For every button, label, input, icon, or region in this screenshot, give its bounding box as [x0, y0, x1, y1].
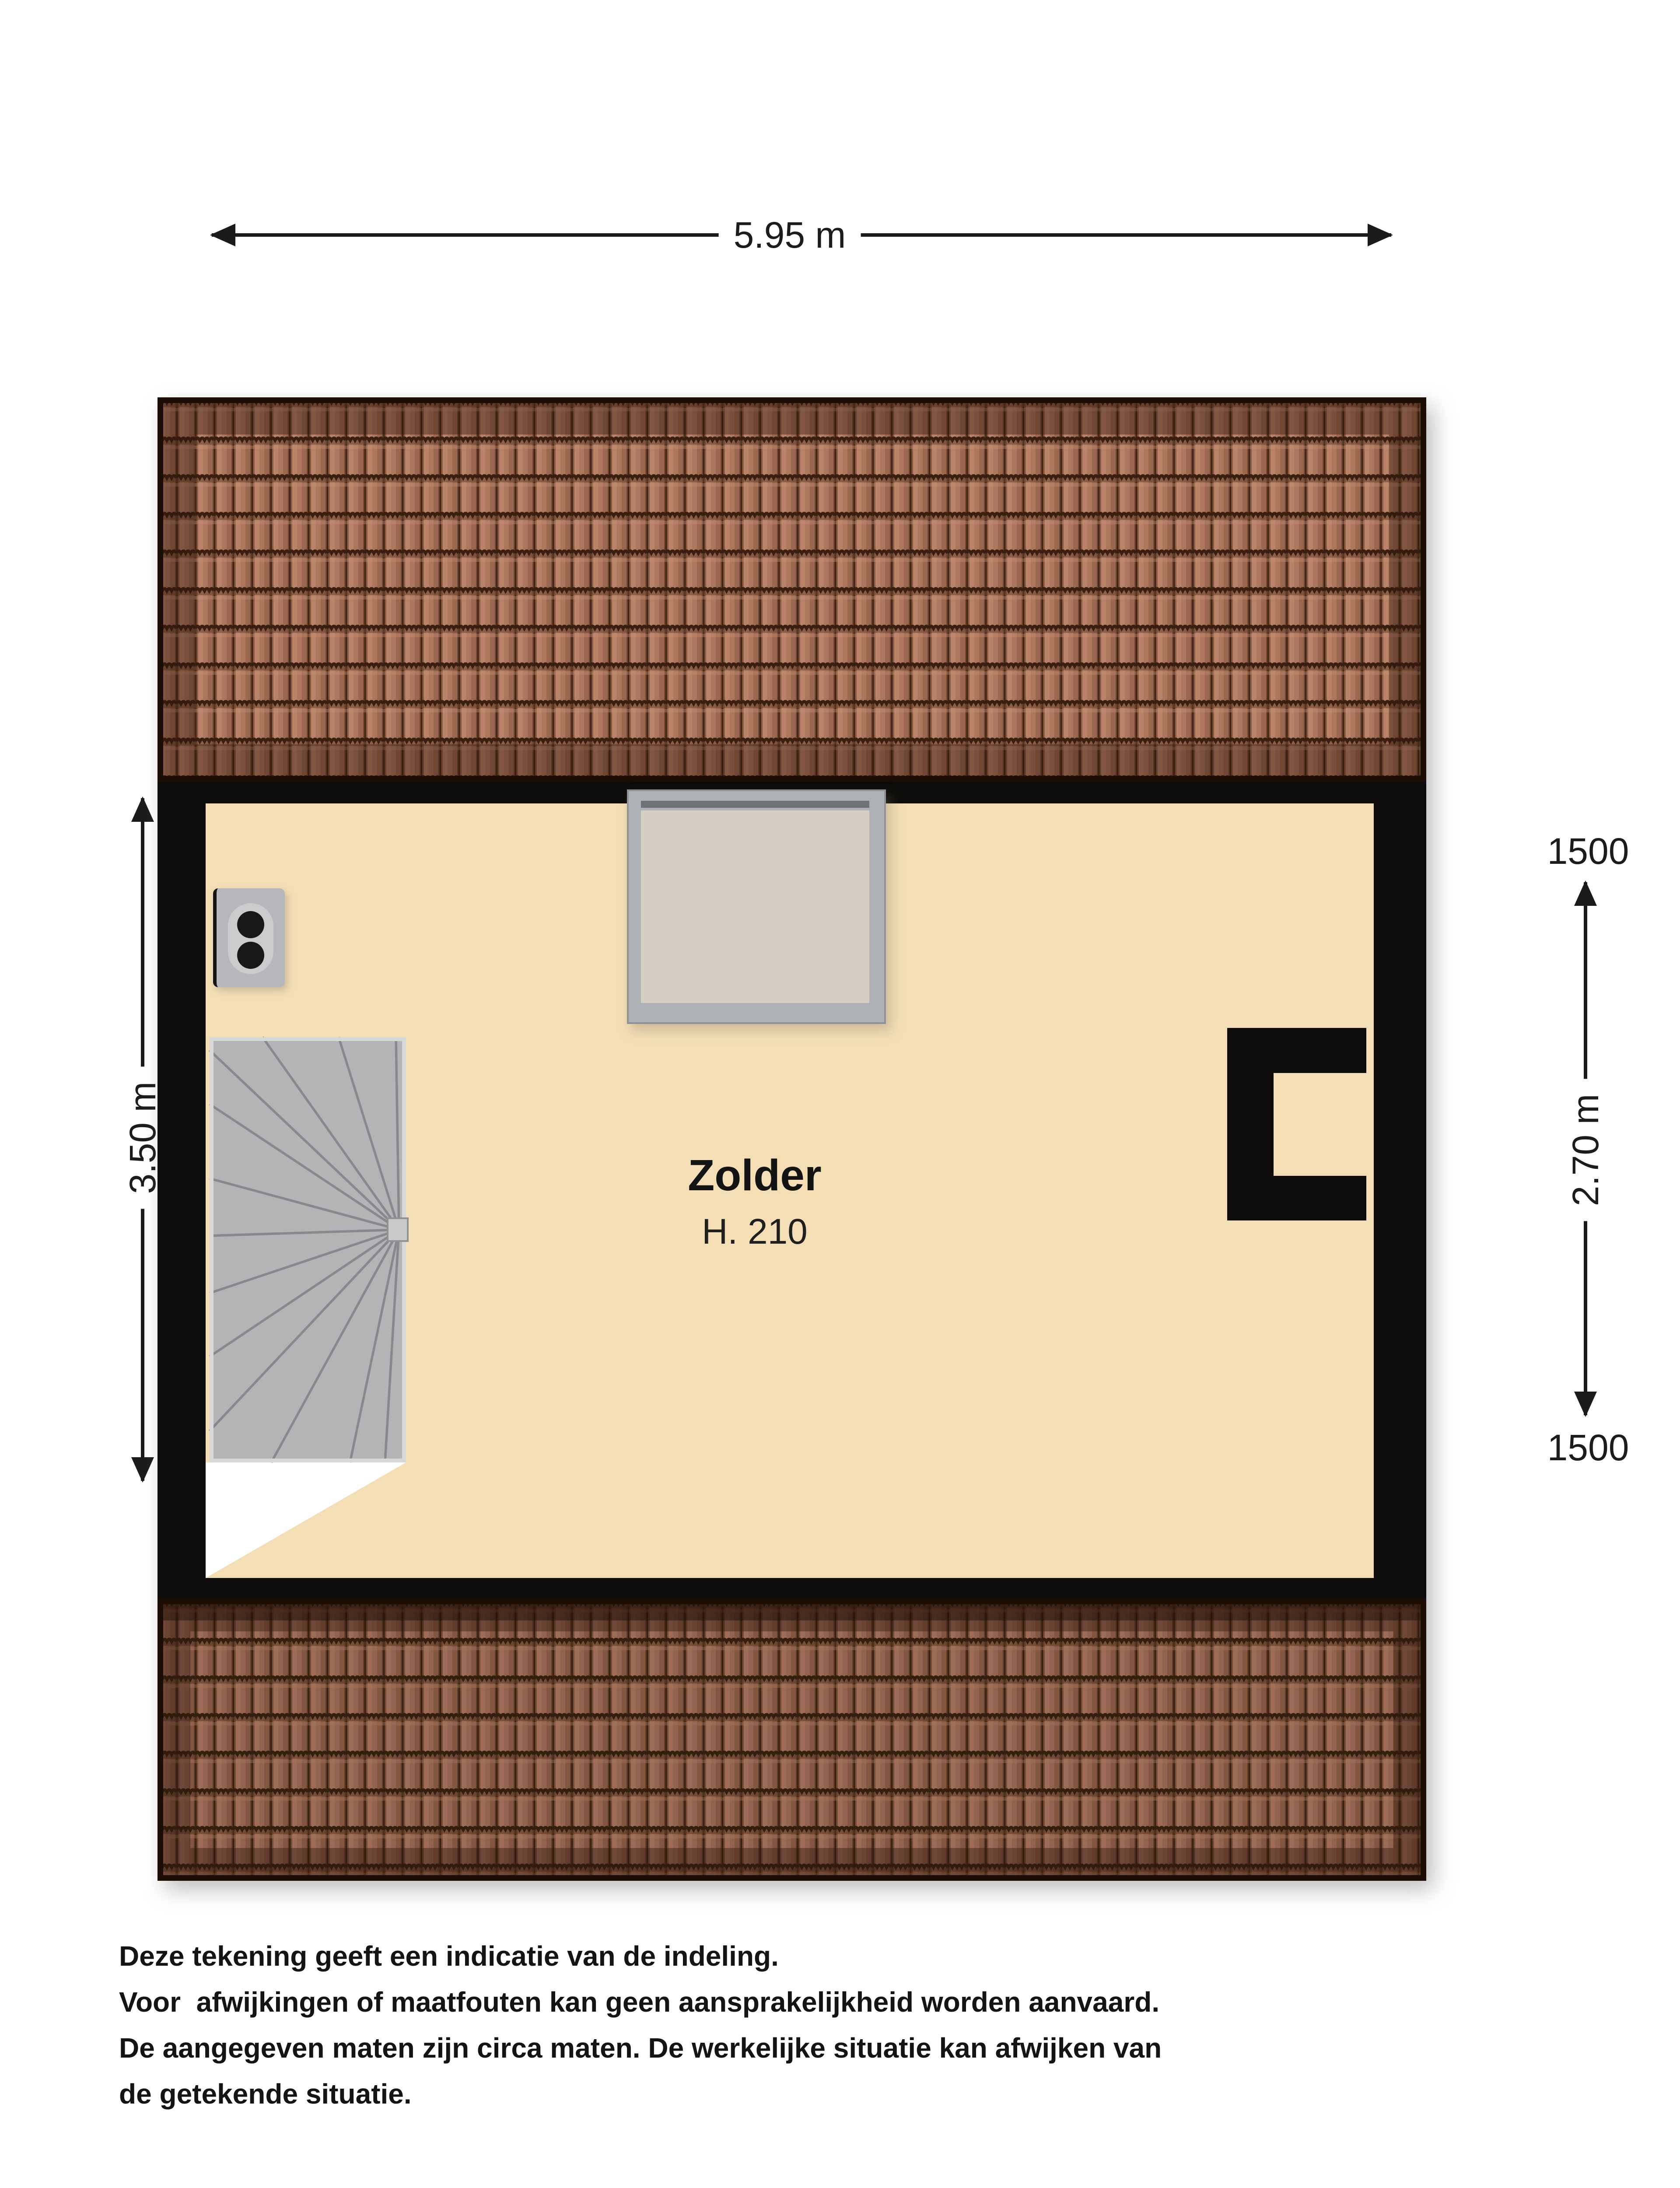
arrow-up-icon — [131, 796, 154, 822]
room-name: Zolder — [688, 1154, 822, 1197]
arrow-up-icon — [1574, 880, 1597, 906]
attic-room: Zolder H. 210 — [157, 782, 1426, 1599]
floor-plan: Zolder H. 210 — [157, 397, 1426, 1881]
floor-opening — [206, 1462, 406, 1578]
disclaimer-line: De aangegeven maten zijn circa maten. De… — [119, 2025, 1563, 2071]
skylight-window — [627, 789, 886, 1024]
disclaimer-line: de getekende situatie. — [119, 2071, 1563, 2117]
right-dimension-bottom-value: 1500 — [1547, 1429, 1629, 1466]
roof-tiles — [157, 397, 1426, 782]
room-ceiling-height: H. 210 — [688, 1214, 822, 1250]
disclaimer-line: Voor afwijkingen of maatfouten kan geen … — [119, 1979, 1563, 2025]
disclaimer-text: Deze tekening geeft een indicatie van de… — [119, 1933, 1563, 2117]
arrow-down-icon — [1574, 1392, 1597, 1417]
roof-top — [157, 397, 1426, 782]
ventilation-outlets — [228, 903, 273, 974]
stair-newel — [388, 1218, 408, 1241]
dimension-label: 2.70 m — [1563, 1079, 1608, 1221]
dimension-label: 5.95 m — [719, 212, 861, 258]
disclaimer-line: Deze tekening geeft een indicatie van de… — [119, 1933, 1563, 1979]
skylight-sash-bar — [641, 801, 869, 808]
outlet-icon — [237, 942, 264, 969]
skylight-glass — [641, 810, 869, 1003]
outlet-icon — [237, 911, 264, 938]
right-dimension-top-value: 1500 — [1547, 833, 1629, 870]
room-label: Zolder H. 210 — [688, 1154, 822, 1250]
ventilation-unit — [213, 888, 285, 987]
chimney-notch — [1274, 1073, 1366, 1176]
arrow-left-icon — [210, 224, 235, 246]
chimney-recess — [1227, 1028, 1366, 1220]
arrow-down-icon — [131, 1457, 154, 1483]
roof-bottom — [157, 1599, 1426, 1881]
arrow-right-icon — [1368, 224, 1393, 246]
winder-stairs — [210, 1037, 408, 1462]
floorplan-page: 5.95 m 3.50 m 1500 2.70 m 1500 — [0, 0, 1680, 2188]
